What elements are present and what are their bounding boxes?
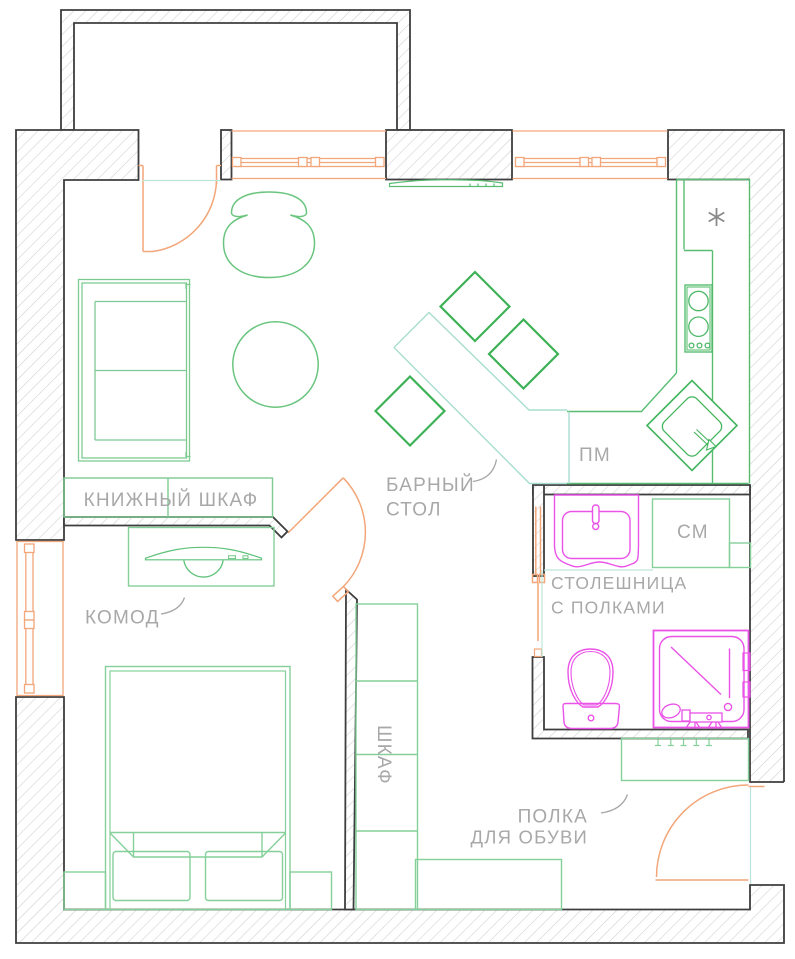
svg-text:СМ: СМ <box>677 522 709 543</box>
svg-text:ШКАФ: ШКАФ <box>373 725 394 785</box>
svg-text:ПОЛКА: ПОЛКА <box>518 807 588 828</box>
svg-text:КНИЖНЫЙ ШКАФ: КНИЖНЫЙ ШКАФ <box>84 489 259 511</box>
svg-text:ДЛЯ ОБУВИ: ДЛЯ ОБУВИ <box>471 827 588 848</box>
svg-text:СТОЛЕШНИЦА: СТОЛЕШНИЦА <box>551 573 687 593</box>
svg-text:БАРНЫЙ: БАРНЫЙ <box>386 474 475 496</box>
svg-text:СТОЛ: СТОЛ <box>386 500 442 521</box>
svg-text:ПМ: ПМ <box>579 445 611 466</box>
svg-text:С ПОЛКАМИ: С ПОЛКАМИ <box>551 598 666 618</box>
svg-text:КОМОД: КОМОД <box>85 608 160 629</box>
